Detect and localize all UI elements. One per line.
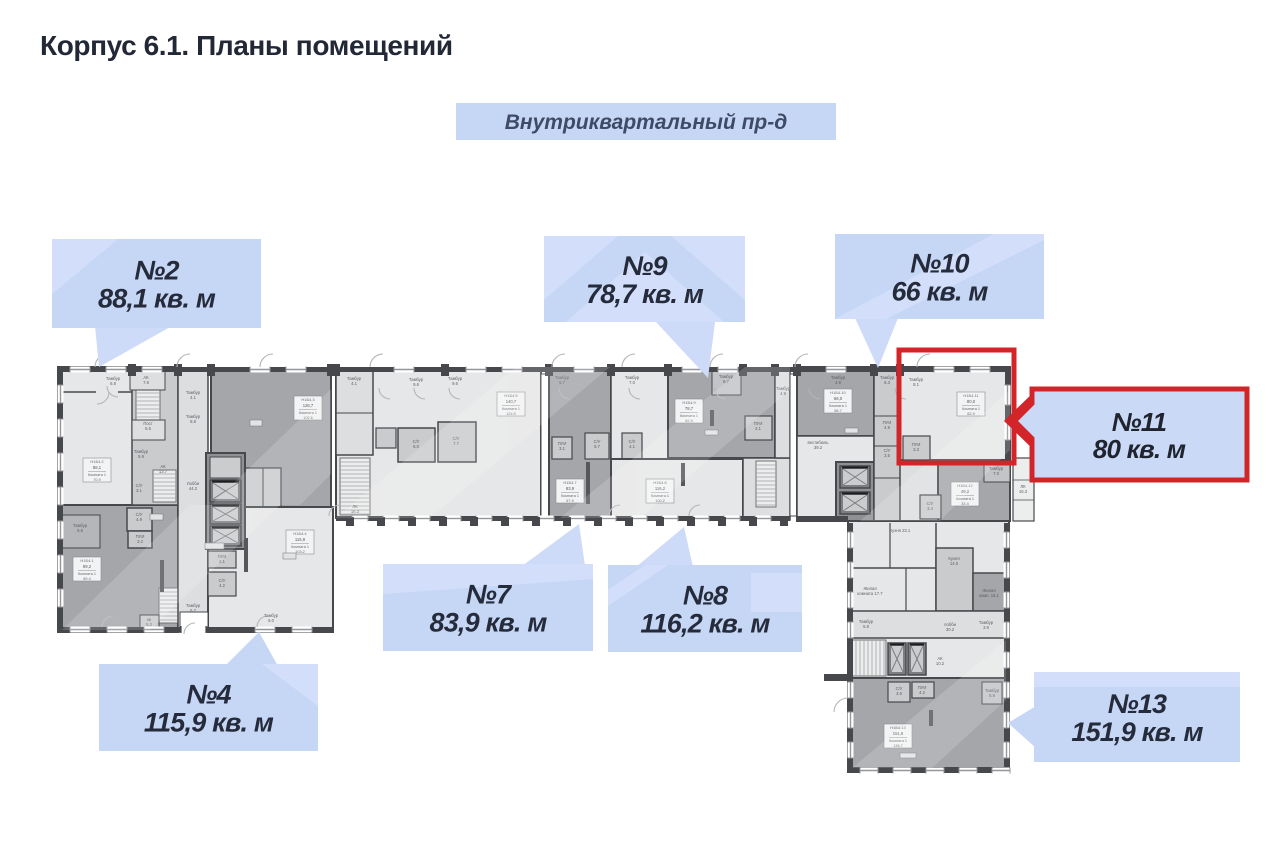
svg-text:78,7 кв. м: 78,7 кв. м	[586, 279, 704, 309]
svg-text:№9: №9	[622, 251, 667, 281]
svg-text:Н1Б4.2: Н1Б4.2	[90, 459, 104, 464]
svg-text:АК7.6: АК7.6	[143, 375, 149, 385]
svg-text:80,0: 80,0	[967, 399, 976, 404]
svg-text:Внутриквартальный пр-д: Внутриквартальный пр-д	[505, 111, 787, 134]
svg-text:С/У3.1: С/У3.1	[136, 483, 143, 493]
svg-text:116,2 кв. м: 116,2 кв. м	[640, 609, 770, 639]
svg-text:№8: №8	[683, 581, 728, 611]
svg-text:С/У4.2: С/У4.2	[219, 578, 226, 588]
svg-text:Н1Б4.7: Н1Б4.7	[563, 480, 577, 485]
svg-text:№13: №13	[1108, 689, 1167, 719]
svg-text:83,9 кв. м: 83,9 кв. м	[429, 608, 547, 638]
svg-text:Н1Б4.4: Н1Б4.4	[293, 531, 307, 536]
svg-text:№7: №7	[466, 580, 513, 610]
svg-text:88,1 кв. м: 88,1 кв. м	[98, 284, 216, 314]
svg-text:С/У4.9: С/У4.9	[136, 512, 143, 522]
svg-text:99,2: 99,2	[83, 564, 92, 569]
svg-text:80 кв. м: 80 кв. м	[1093, 434, 1186, 464]
svg-text:№10: №10	[910, 249, 969, 279]
svg-text:Н1Б4.11: Н1Б4.11	[963, 393, 979, 398]
svg-text:151,9 кв. м: 151,9 кв. м	[1071, 717, 1203, 747]
svg-text:С/У6.0: С/У6.0	[413, 439, 420, 449]
svg-text:Н1Б4.3: Н1Б4.3	[301, 397, 315, 402]
svg-text:115,9: 115,9	[295, 537, 306, 542]
svg-text:Кухня14.0: Кухня14.0	[948, 556, 959, 566]
svg-text:88,1: 88,1	[93, 465, 102, 470]
svg-text:С/У4.1: С/У4.1	[629, 439, 636, 449]
svg-text:№4: №4	[186, 680, 231, 710]
svg-text:66 кв. м: 66 кв. м	[891, 277, 988, 307]
svg-text:83,9: 83,9	[566, 486, 575, 491]
svg-text:66,0: 66,0	[834, 396, 843, 401]
svg-text:С/У3.6: С/У3.6	[896, 686, 903, 696]
svg-text:№2: №2	[134, 256, 179, 286]
svg-text:Н1Б4.9: Н1Б4.9	[682, 400, 696, 405]
svg-text:С/У5.7: С/У5.7	[594, 439, 601, 449]
svg-text:Н1Б4.10: Н1Б4.10	[830, 390, 846, 395]
svg-text:С/У3.5: С/У3.5	[884, 448, 891, 458]
svg-text:Кухня 23.1: Кухня 23.1	[890, 528, 911, 533]
svg-text:№11: №11	[1112, 407, 1167, 437]
svg-text:Корпус 6.1. Планы помещений: Корпус 6.1. Планы помещений	[40, 30, 453, 61]
svg-text:115,9 кв. м: 115,9 кв. м	[144, 708, 274, 738]
svg-text:Н1Б4.1: Н1Б4.1	[80, 558, 94, 563]
